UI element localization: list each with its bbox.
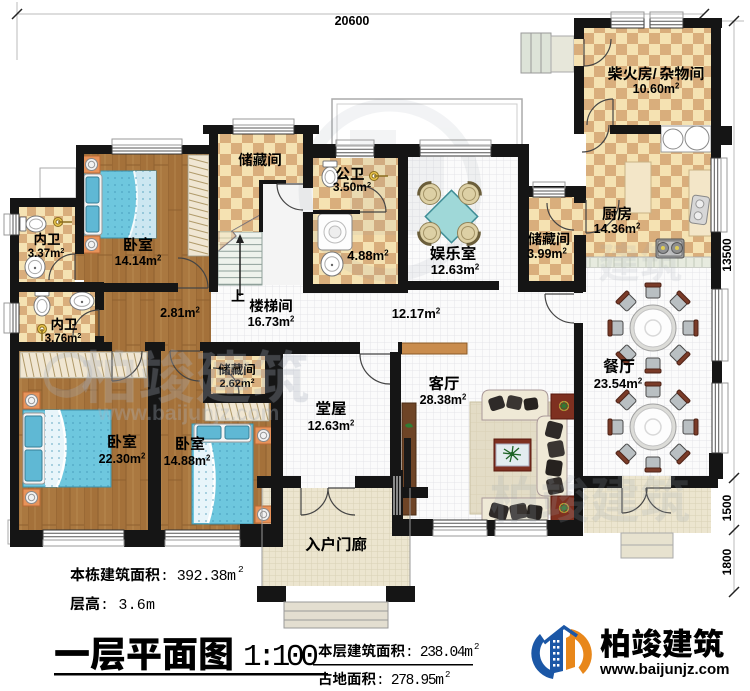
svg-text:3.50m2: 3.50m2 — [333, 180, 371, 194]
svg-text:14.88m2: 14.88m2 — [164, 454, 211, 468]
svg-text:1:100: 1:100 — [243, 640, 319, 675]
svg-text:22.30m2: 22.30m2 — [99, 452, 146, 466]
svg-text:23.54m2: 23.54m2 — [594, 376, 643, 391]
svg-text:12.17m2: 12.17m2 — [392, 306, 441, 321]
svg-text:: 238.04m: : 238.04m — [405, 645, 473, 661]
svg-text:2: 2 — [445, 670, 450, 680]
svg-text:13500: 13500 — [720, 238, 734, 272]
svg-text:14.14m2: 14.14m2 — [115, 254, 162, 268]
svg-text:3.99m2: 3.99m2 — [527, 247, 567, 261]
svg-text:12.63m2: 12.63m2 — [431, 262, 480, 277]
svg-text:12.63m2: 12.63m2 — [308, 419, 355, 433]
svg-text:28.38m2: 28.38m2 — [420, 393, 467, 407]
svg-text:1800: 1800 — [720, 548, 734, 575]
svg-text:2: 2 — [474, 642, 479, 652]
svg-text:4.88m2: 4.88m2 — [347, 248, 389, 263]
svg-text:www.baijunjz.com: www.baijunjz.com — [599, 661, 729, 678]
svg-text:3.37m2: 3.37m2 — [28, 247, 65, 260]
svg-text:20600: 20600 — [335, 14, 370, 28]
svg-text:www.baijunjz.com: www.baijunjz.com — [97, 402, 279, 425]
svg-text:14.36m2: 14.36m2 — [594, 222, 641, 236]
svg-text:: 392.38m: : 392.38m — [160, 568, 236, 585]
svg-text:: 278.95m: : 278.95m — [376, 673, 444, 689]
svg-text:2: 2 — [238, 564, 244, 575]
svg-text:3.76m2: 3.76m2 — [45, 332, 82, 345]
svg-text:1500: 1500 — [720, 494, 734, 521]
svg-text:10.60m2: 10.60m2 — [633, 82, 680, 96]
svg-text:: 3.6m: : 3.6m — [100, 597, 155, 614]
svg-text:16.73m2: 16.73m2 — [248, 315, 295, 329]
svg-text:2.81m2: 2.81m2 — [160, 306, 200, 320]
